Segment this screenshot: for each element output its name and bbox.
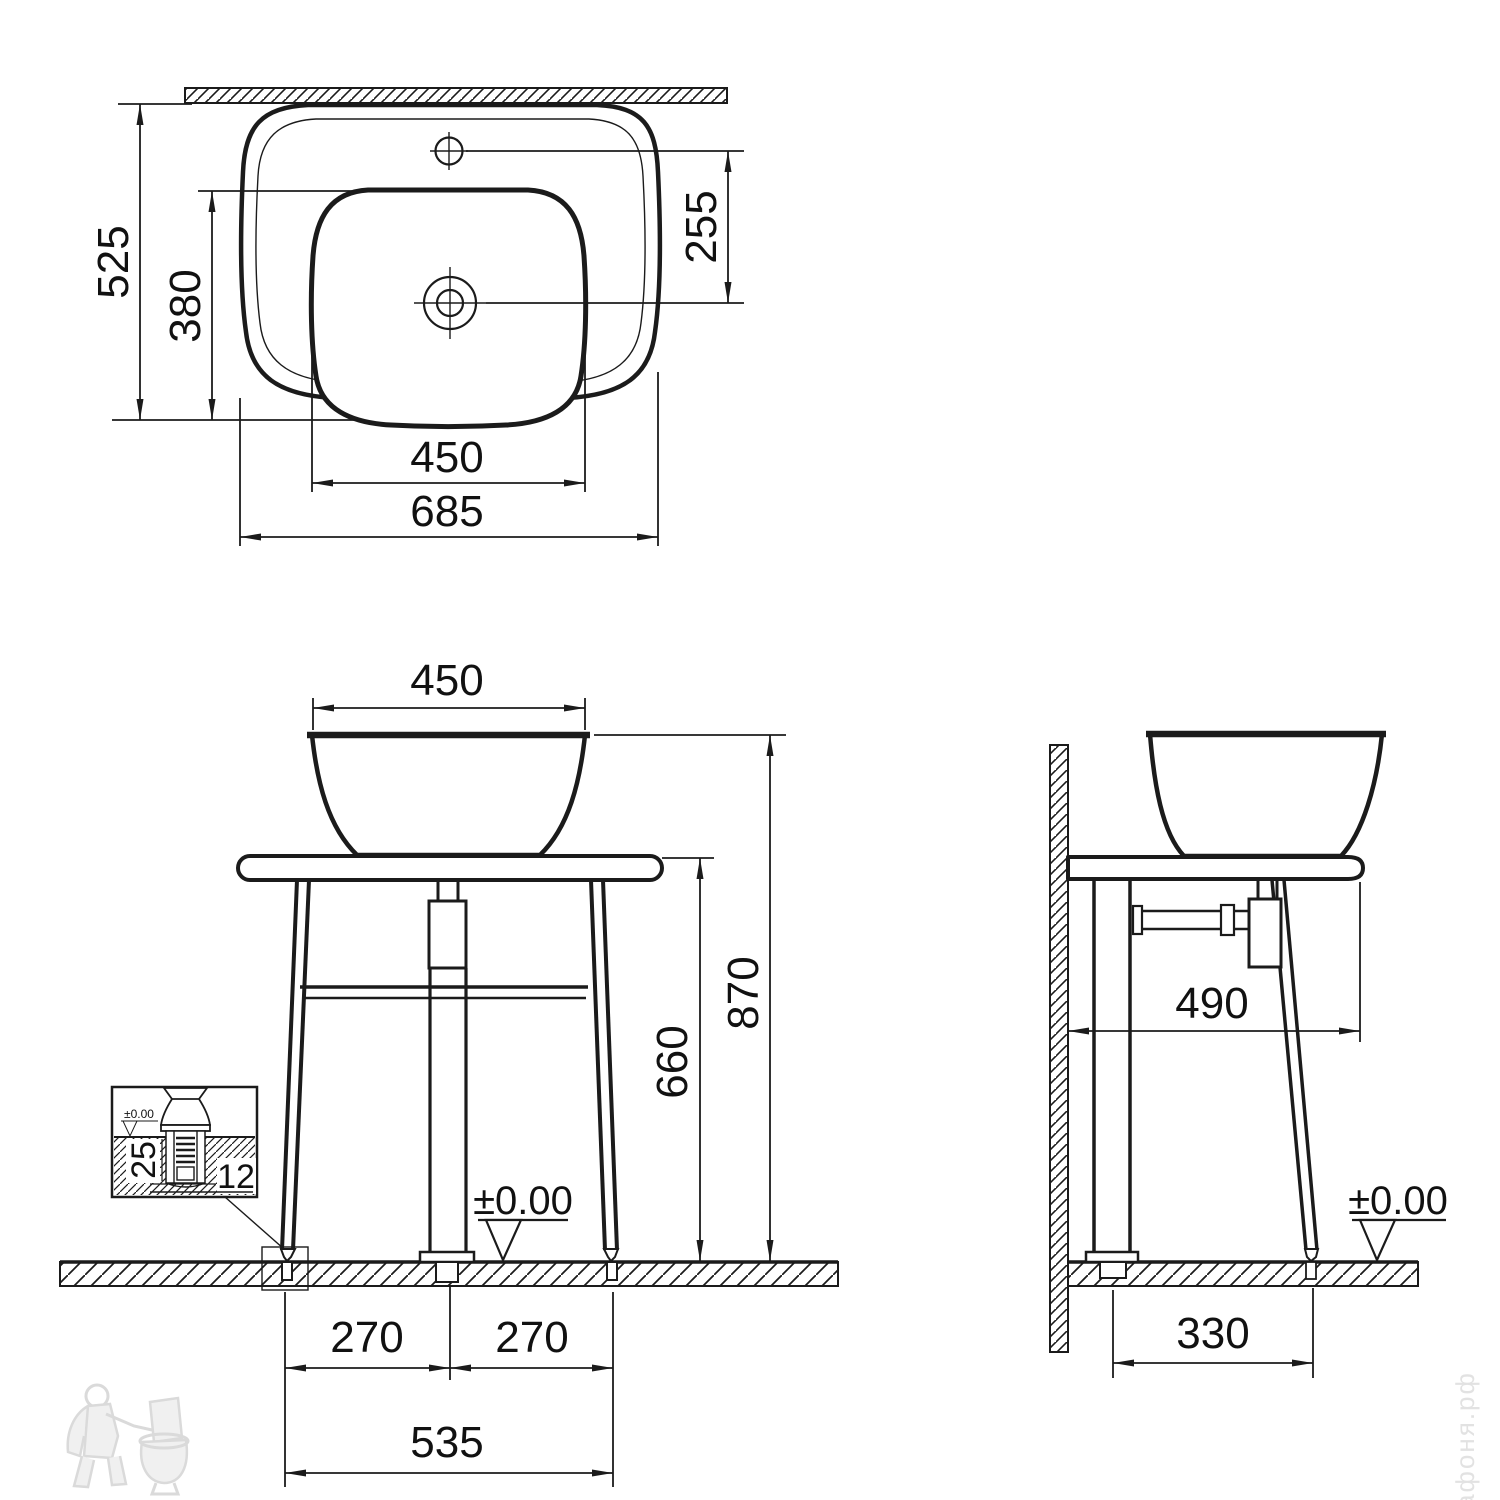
pipe-flange-left <box>1133 906 1142 934</box>
left-leg-front <box>262 880 309 1290</box>
drain-floor-anchor <box>436 1262 458 1282</box>
wall-section-top <box>185 88 727 103</box>
dim-anchor-span-front: 535 <box>285 1418 613 1473</box>
basin-side <box>1146 734 1386 856</box>
drain-piping-side <box>1133 880 1281 967</box>
dim-anchor-span-side: 330 <box>1113 1288 1313 1378</box>
back-foot-flange <box>1086 1252 1138 1262</box>
back-leg-side <box>1086 880 1138 1278</box>
dim-label-535: 535 <box>410 1418 483 1467</box>
drain-union-fitting <box>429 901 466 968</box>
top-view: 525 380 255 450 685 <box>89 88 744 546</box>
dim-basin-width-front: 450 <box>313 656 585 730</box>
front-foot-anchor-side <box>1306 1262 1316 1279</box>
dim-label-525: 525 <box>89 225 138 298</box>
dim-label-685: 685 <box>410 487 483 536</box>
left-foot-anchor <box>282 1262 292 1280</box>
level-label-side: ±0.00 <box>1348 1179 1448 1223</box>
basin-outline-top <box>311 190 585 427</box>
anchor-detail-inset: ±0.00 25 12 <box>112 1087 284 1249</box>
level-mark-side: ±0.00 <box>1348 1179 1448 1260</box>
inset-anchor-bolt <box>166 1131 205 1187</box>
watermark-logo <box>68 1385 188 1494</box>
dim-label-490: 490 <box>1175 979 1248 1028</box>
front-foot-side <box>1305 1249 1318 1261</box>
dim-table-depth: 490 <box>1068 882 1360 1042</box>
dim-label-870: 870 <box>719 956 768 1029</box>
washbasin-installation-drawing: 525 380 255 450 685 <box>0 0 1500 1500</box>
left-foot <box>281 1249 295 1261</box>
dim-total-height: 870 <box>594 735 786 1261</box>
pipe-nut <box>1221 905 1234 935</box>
crossbar <box>300 987 588 998</box>
basin-front <box>307 735 590 855</box>
inset-foot <box>161 1088 210 1131</box>
dim-label-660: 660 <box>648 1025 697 1098</box>
dim-label-25: 25 <box>125 1141 163 1179</box>
wall-section-side <box>1050 745 1068 1352</box>
dim-label-270-right: 270 <box>495 1313 568 1362</box>
back-foot-anchor <box>1100 1262 1126 1278</box>
dim-label-450-front: 450 <box>410 656 483 705</box>
drain-column <box>420 880 474 1282</box>
dim-table-height: 660 <box>648 858 714 1261</box>
dim-label-450-top: 450 <box>410 433 483 482</box>
siphon-trap <box>1249 899 1281 967</box>
inset-leader-line <box>225 1197 284 1249</box>
inset-level-label: ±0.00 <box>124 1107 154 1121</box>
front-view: 450 660 870 ±0.00 270 270 <box>60 656 838 1487</box>
watermark-site-text: афоня.рф <box>1450 1371 1480 1500</box>
right-foot-anchor <box>607 1262 617 1280</box>
tabletop-front <box>238 856 662 880</box>
dim-label-255: 255 <box>677 190 726 263</box>
dim-label-380: 380 <box>161 269 210 342</box>
level-mark-front: ±0.00 <box>473 1179 573 1260</box>
side-view: 490 330 ±0.00 <box>1050 734 1448 1378</box>
technical-drawing-page: 525 380 255 450 685 <box>0 0 1500 1500</box>
level-label-front: ±0.00 <box>473 1179 573 1223</box>
dim-label-270-left: 270 <box>330 1313 403 1362</box>
tabletop-side <box>1068 857 1363 879</box>
level-triangle-side <box>1360 1220 1395 1260</box>
dim-label-330: 330 <box>1176 1309 1249 1358</box>
level-triangle-front <box>486 1220 521 1260</box>
right-foot <box>604 1249 618 1261</box>
drain-floor-flange <box>420 1252 474 1262</box>
right-leg-front <box>591 880 618 1280</box>
dim-label-12: 12 <box>217 1158 255 1196</box>
